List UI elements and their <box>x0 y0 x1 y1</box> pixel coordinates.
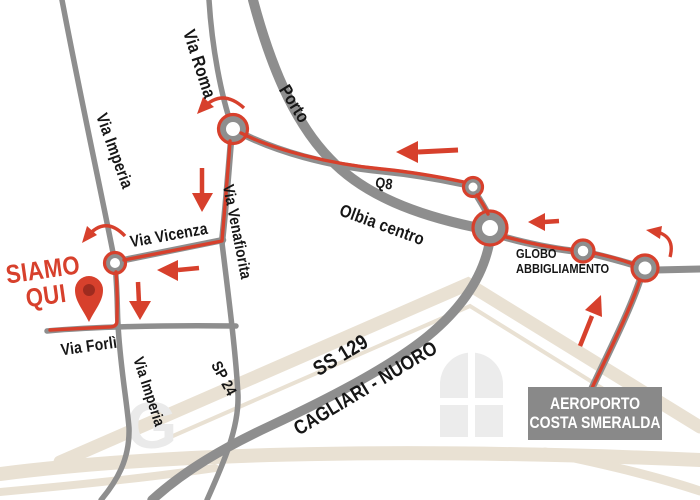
aeroporto-sign-line1: AEROPORTO <box>550 395 640 414</box>
roundabout-via-roma <box>222 118 244 140</box>
aeroporto-sign-line2: COSTA SMERALDA <box>530 414 661 433</box>
arrow-airport-up-shaft <box>580 316 592 346</box>
arrow-airport-up-icon <box>585 295 602 317</box>
globo-label-line2: ABBIGLIAMENTO <box>516 261 609 276</box>
arrow-mid-left-shaft <box>544 221 559 222</box>
arrow-vicenza-left-shaft <box>178 268 199 270</box>
pin-body <box>75 276 103 322</box>
aeroporto-sign: AEROPORTO COSTA SMERALDA <box>528 387 662 440</box>
route-map: G <box>0 0 700 500</box>
road-porto-olbia-centro <box>253 0 474 227</box>
arrow-siamo-down-icon <box>129 301 151 320</box>
location-pin-icon <box>75 276 103 322</box>
roundabout-small <box>466 180 481 195</box>
arrow-q8-left-shaft <box>418 150 458 152</box>
arrow-siamo-down-shaft <box>138 282 139 303</box>
window-mullion-vertical <box>468 352 475 437</box>
window-watermark <box>436 352 507 437</box>
roundabout-big <box>477 215 503 241</box>
road-via-roma <box>209 0 232 127</box>
arc-arrow-right-roundabout-icon <box>646 226 662 239</box>
globo-abbigliamento-label: GLOBO ABBIGLIAMENTO <box>516 246 609 276</box>
globo-label-line1: GLOBO <box>516 246 609 261</box>
pin-center-dot <box>83 284 95 296</box>
roundabout-siamo-qui <box>107 255 123 271</box>
arrow-vicenza-left-icon <box>157 260 178 281</box>
arrow-mid-left-icon <box>528 213 545 231</box>
road-label-q8: Q8 <box>374 174 394 193</box>
arrow-venafiorita-down-icon <box>192 193 213 212</box>
road-east-exit <box>656 269 700 270</box>
roundabout-right <box>635 258 655 278</box>
arrow-q8-left-icon <box>396 141 418 163</box>
siamo-qui-label-line2: QUI <box>24 278 68 314</box>
window-mullion-horizontal <box>436 398 507 405</box>
